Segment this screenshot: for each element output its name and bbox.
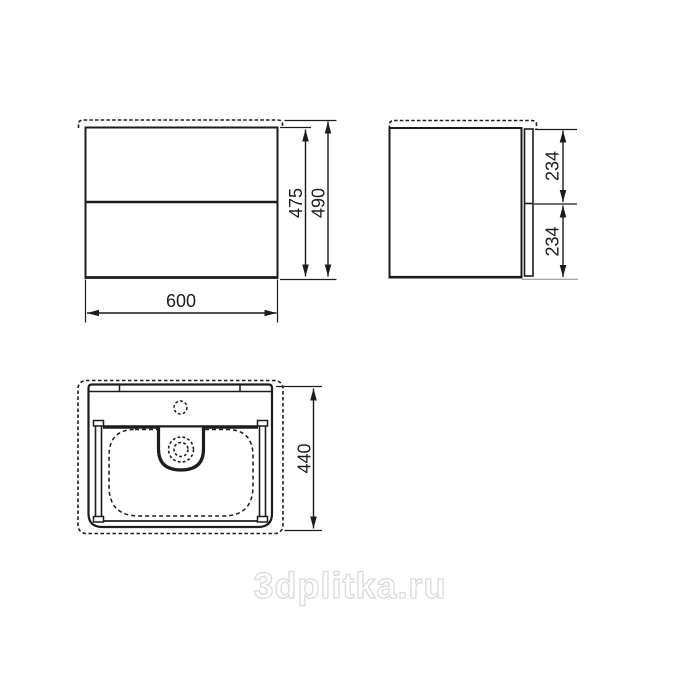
dim-label-lower-drawer: 234 bbox=[543, 226, 563, 256]
arrowhead-up bbox=[310, 389, 317, 401]
arrowhead-up bbox=[325, 122, 332, 134]
arrowhead-down bbox=[310, 517, 317, 529]
technical-drawing-page: 3dplitka.ru 600 bbox=[0, 0, 698, 699]
drawing-canvas: 3dplitka.ru 600 bbox=[0, 0, 698, 699]
side-view: 234 234 bbox=[389, 121, 578, 280]
dimension-height-total: 490 bbox=[309, 122, 332, 277]
arrowhead-down bbox=[325, 265, 332, 277]
front-view: 600 475 490 bbox=[79, 120, 337, 323]
arrowhead-down bbox=[560, 265, 567, 277]
arrowhead-up bbox=[302, 130, 309, 142]
side-drawer-front-strip bbox=[525, 129, 534, 276]
dim-label-depth: 440 bbox=[295, 443, 315, 473]
plan-view: 440 bbox=[78, 381, 322, 534]
dimension-depth: 440 bbox=[295, 389, 317, 529]
rail-cap-bottom bbox=[94, 517, 104, 523]
arrowhead-left bbox=[87, 310, 99, 316]
rail-cap-top bbox=[94, 421, 104, 427]
dimension-height-cabinet: 475 bbox=[286, 130, 309, 277]
arrowhead-down bbox=[302, 265, 309, 277]
arrowhead-up bbox=[560, 206, 567, 218]
overflow-pocket bbox=[159, 428, 204, 471]
rail-cap-bottom bbox=[258, 517, 268, 523]
dimension-width: 600 bbox=[87, 291, 277, 316]
side-body-outline bbox=[390, 128, 522, 278]
dimension-upper-drawer: 234 bbox=[543, 131, 567, 203]
arrowhead-down bbox=[560, 190, 567, 202]
dimension-lower-drawer: 234 bbox=[543, 206, 567, 278]
watermark-text: 3dplitka.ru bbox=[253, 565, 446, 606]
dim-label-height-total: 490 bbox=[309, 188, 329, 218]
dim-label-width: 600 bbox=[166, 291, 196, 311]
dim-label-height-cabinet: 475 bbox=[286, 188, 306, 218]
arrowhead-right bbox=[265, 310, 277, 316]
arrowhead-up bbox=[560, 131, 567, 143]
dim-label-upper-drawer: 234 bbox=[543, 151, 563, 181]
rail-cap-top bbox=[258, 421, 268, 427]
